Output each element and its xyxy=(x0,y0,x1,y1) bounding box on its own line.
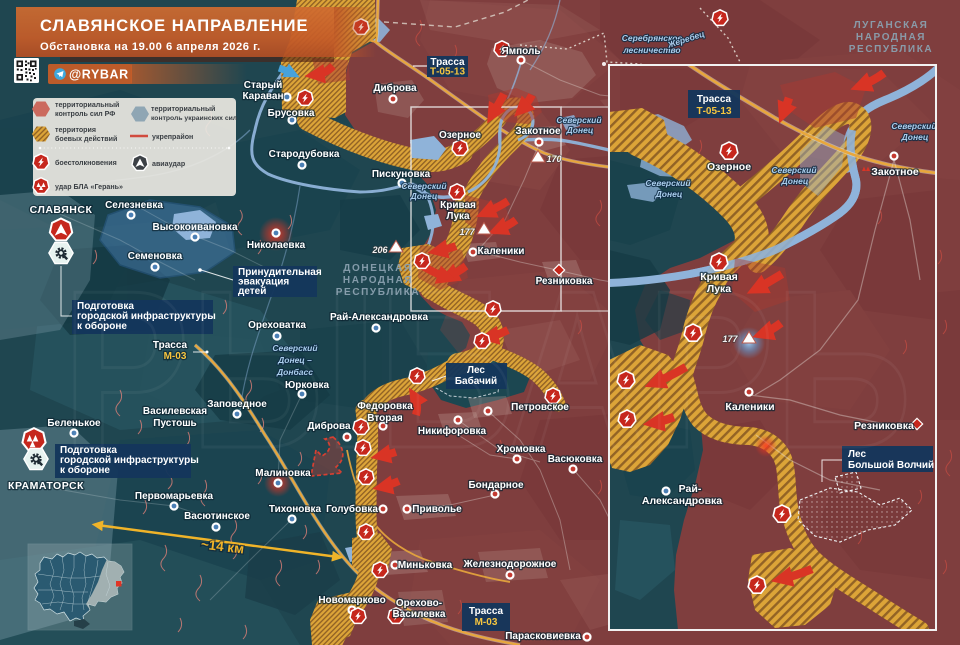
svg-text:боестолкновения: боестолкновения xyxy=(55,159,117,167)
svg-text:Северский: Северский xyxy=(645,178,691,188)
svg-text:Донец: Донец xyxy=(901,132,929,142)
svg-text:РЫБАРЬ: РЫБАРЬ xyxy=(62,243,912,495)
svg-text:Донец: Донец xyxy=(781,176,809,186)
svg-text:170: 170 xyxy=(546,154,561,164)
svg-text:Т-05-13: Т-05-13 xyxy=(696,106,731,117)
svg-text:Брусовка: Брусовка xyxy=(268,108,315,119)
svg-text:СЛАВЯНСКОЕ НАПРАВЛЕНИЕ: СЛАВЯНСКОЕ НАПРАВЛЕНИЕ xyxy=(40,17,309,35)
svg-text:Донец: Донец xyxy=(410,191,438,201)
svg-text:Северский: Северский xyxy=(401,181,447,191)
svg-text:ЛУГАНСКАЯ: ЛУГАНСКАЯ xyxy=(854,20,929,31)
svg-text:Приволье: Приволье xyxy=(412,504,462,515)
svg-text:Северский: Северский xyxy=(891,121,937,131)
svg-text:контроль украинских сил: контроль украинских сил xyxy=(151,115,237,122)
svg-text:НАРОДНАЯ: НАРОДНАЯ xyxy=(856,32,926,43)
svg-text:Диброва: Диброва xyxy=(373,82,417,94)
svg-text:Ямполь: Ямполь xyxy=(502,46,541,57)
svg-text:Старый: Старый xyxy=(244,80,282,91)
svg-text:Донец: Донец xyxy=(566,125,594,135)
svg-text:Стародубовка: Стародубовка xyxy=(269,148,340,160)
svg-text:Высокоивановка: Высокоивановка xyxy=(153,222,238,233)
svg-text:Кривая: Кривая xyxy=(440,200,476,211)
svg-text:РЕСПУБЛИКА: РЕСПУБЛИКА xyxy=(849,44,933,55)
svg-text:Васютинское: Васютинское xyxy=(184,511,250,522)
svg-text:Т-05-13: Т-05-13 xyxy=(430,67,465,78)
svg-text:Лука: Лука xyxy=(446,211,470,222)
svg-text:Караван: Караван xyxy=(242,91,283,102)
svg-text:Закотное: Закотное xyxy=(515,126,561,137)
svg-text:территориальный: территориальный xyxy=(55,101,119,109)
svg-text:боевых действий: боевых действий xyxy=(55,135,117,143)
svg-text:Трасса: Трасса xyxy=(697,94,732,105)
svg-text:территориальный: территориальный xyxy=(151,105,215,113)
svg-text:Озерное: Озерное xyxy=(439,130,481,141)
svg-text:Пискуновка: Пискуновка xyxy=(372,169,431,180)
svg-text:удар БЛА «Герань»: удар БЛА «Герань» xyxy=(55,183,123,191)
svg-text:Орехово-: Орехово- xyxy=(396,598,442,609)
svg-text:Парасковиевка: Парасковиевка xyxy=(505,631,581,642)
svg-text:Александровка: Александровка xyxy=(642,495,722,507)
svg-text:Голубовка: Голубовка xyxy=(326,503,378,515)
svg-text:Озерное: Озерное xyxy=(707,161,751,173)
svg-text:Северский: Северский xyxy=(771,165,817,175)
svg-text:территория: территория xyxy=(55,126,96,134)
svg-text:М-03: М-03 xyxy=(475,617,498,628)
svg-text:Железнодорожное: Железнодорожное xyxy=(463,559,557,570)
svg-text:укрепрайон: укрепрайон xyxy=(152,133,193,141)
svg-text:Тихоновка: Тихоновка xyxy=(269,504,322,515)
svg-text:контроль сил РФ: контроль сил РФ xyxy=(55,110,115,118)
svg-text:@RYBAR: @RYBAR xyxy=(69,68,129,82)
svg-text:авиаудар: авиаудар xyxy=(152,160,186,168)
svg-text:Селезневка: Селезневка xyxy=(105,200,163,211)
svg-text:Обстановка на 19.00 6 апреля 2: Обстановка на 19.00 6 апреля 2026 г. xyxy=(40,41,261,53)
svg-text:СЛАВЯНСК: СЛАВЯНСК xyxy=(30,204,93,216)
svg-text:Закотное: Закотное xyxy=(871,166,919,178)
svg-text:Новомарково: Новомарково xyxy=(318,595,385,606)
svg-text:177: 177 xyxy=(459,227,475,237)
svg-text:Донец: Донец xyxy=(655,189,683,199)
svg-text:Северский: Северский xyxy=(556,115,602,125)
svg-text:Миньковка: Миньковка xyxy=(398,560,453,571)
svg-text:Василевка: Василевка xyxy=(393,609,446,620)
svg-text:Трасса: Трасса xyxy=(469,606,504,617)
